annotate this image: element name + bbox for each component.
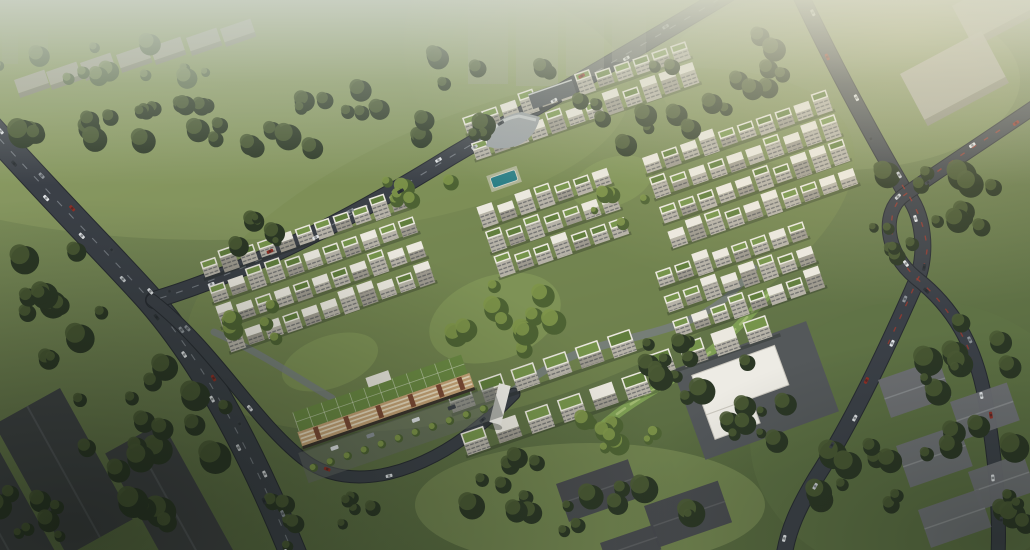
- aerial-masterplan-rendering: [0, 0, 1030, 550]
- shadow-vignette-bottom-right: [0, 0, 1030, 550]
- rendering-canvas: [0, 0, 1030, 550]
- atmosphere: [0, 0, 1030, 550]
